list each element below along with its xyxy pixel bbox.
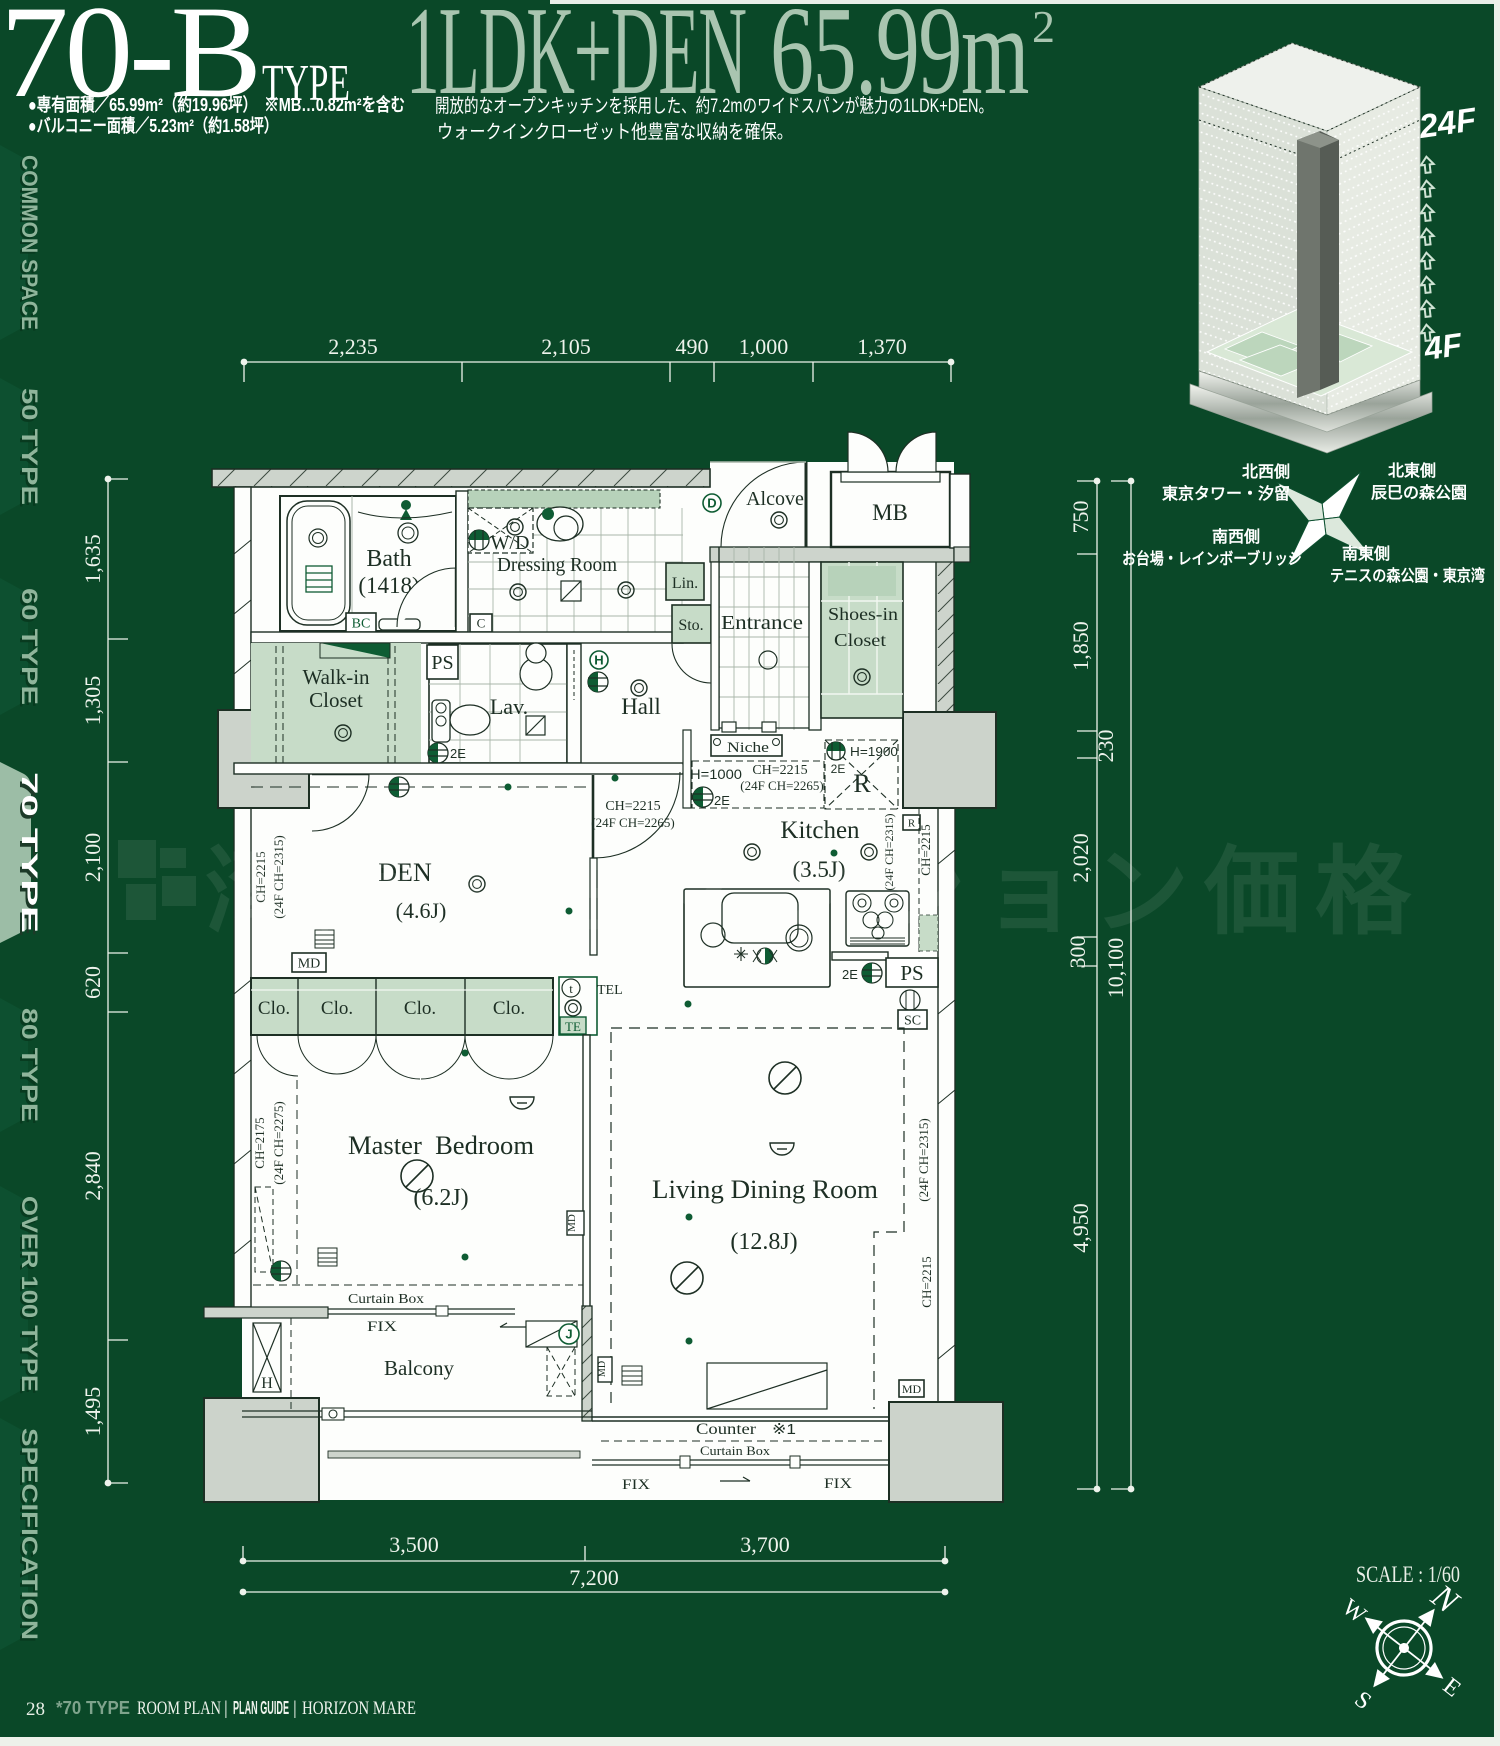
svg-text:1,370: 1,370 (857, 334, 907, 359)
svg-text:D: D (707, 496, 716, 511)
svg-text:Counter: Counter (696, 1421, 757, 1438)
svg-text:70 TYPE: 70 TYPE (17, 772, 42, 933)
svg-text:Closet: Closet (309, 688, 363, 712)
svg-text:7,200: 7,200 (569, 1565, 619, 1590)
svg-text:Clo.: Clo. (321, 998, 353, 1019)
svg-text:R: R (908, 818, 916, 830)
svg-text:(24F CH=2315): (24F CH=2315) (916, 1118, 931, 1202)
svg-text:BC: BC (352, 617, 371, 632)
svg-text:490: 490 (676, 334, 709, 359)
svg-text:MD: MD (298, 957, 321, 972)
svg-text:2,235: 2,235 (328, 334, 378, 359)
svg-text:|: | (224, 1698, 228, 1719)
svg-text:3,500: 3,500 (389, 1532, 439, 1557)
svg-text:SPECIFICATION: SPECIFICATION (17, 1428, 42, 1640)
svg-text:(12.8J): (12.8J) (730, 1229, 797, 1255)
svg-text:C: C (477, 616, 486, 631)
svg-text:●バルコニー面積／5.23m²（約1.58坪）: ●バルコニー面積／5.23m²（約1.58坪） (28, 115, 278, 136)
svg-text:Hall: Hall (621, 694, 661, 719)
svg-text:Clo.: Clo. (404, 998, 436, 1019)
svg-text:TEL: TEL (597, 983, 623, 998)
svg-text:1,495: 1,495 (80, 1387, 105, 1437)
svg-text:FIX: FIX (367, 1319, 397, 1335)
svg-text:4,950: 4,950 (1068, 1203, 1093, 1253)
svg-text:Curtain Box: Curtain Box (700, 1443, 771, 1458)
svg-text:ウォークインクローゼット他豊富な収納を確保。: ウォークインクローゼット他豊富な収納を確保。 (437, 121, 793, 143)
svg-text:東京タワー・汐留: 東京タワー・汐留 (1162, 484, 1290, 503)
svg-text:1,000: 1,000 (739, 334, 789, 359)
svg-text:60 TYPE: 60 TYPE (17, 588, 42, 705)
svg-text:H=1000: H=1000 (690, 766, 742, 782)
svg-text:Living Dining Room: Living Dining Room (652, 1175, 878, 1204)
svg-text:Clo.: Clo. (258, 998, 290, 1019)
svg-text:PS: PS (900, 961, 923, 985)
svg-text:COMMON SPACE: COMMON SPACE (17, 155, 42, 330)
svg-text:2,840: 2,840 (80, 1151, 105, 1201)
svg-text:HORIZON MARE: HORIZON MARE (302, 1698, 416, 1719)
svg-text:テニスの森公園・東京湾: テニスの森公園・東京湾 (1330, 566, 1485, 585)
svg-text:開放的なオープンキッチンを採用した、約7.2mのワイドスパン: 開放的なオープンキッチンを採用した、約7.2mのワイドスパンが魅力の1LDK+D… (435, 95, 993, 117)
svg-text:ROOM PLAN: ROOM PLAN (137, 1698, 221, 1719)
svg-text:t: t (569, 981, 573, 996)
svg-text:Clo.: Clo. (493, 998, 525, 1019)
svg-text:*70 TYPE: *70 TYPE (56, 1698, 130, 1718)
svg-text:湾岸中古マンション価格: 湾岸中古マンション価格 (205, 839, 1426, 946)
svg-text:1,305: 1,305 (80, 676, 105, 726)
svg-text:Alcove: Alcove (746, 488, 804, 510)
svg-text:CH=2175: CH=2175 (252, 1117, 267, 1168)
svg-text:●専有面積／65.99m²（約19.96坪） ※MB…0.8: ●専有面積／65.99m²（約19.96坪） ※MB…0.82m²を含む (28, 94, 405, 115)
svg-text:CH=2215: CH=2215 (752, 763, 807, 778)
svg-text:W/D: W/D (491, 532, 530, 554)
svg-text:3,700: 3,700 (740, 1532, 790, 1557)
svg-text:50 TYPE: 50 TYPE (17, 388, 42, 505)
svg-text:MD: MD (902, 1382, 922, 1396)
svg-text:2,100: 2,100 (80, 833, 105, 883)
svg-text:TE: TE (565, 1019, 581, 1034)
svg-text:CH=2215: CH=2215 (919, 1256, 934, 1307)
svg-text:北西側: 北西側 (1242, 462, 1290, 481)
svg-text:お台場・レインボーブリッジ: お台場・レインボーブリッジ (1122, 549, 1302, 568)
svg-text:MB: MB (872, 500, 908, 525)
svg-text:FIX: FIX (622, 1477, 650, 1493)
svg-text:Bath: Bath (366, 546, 411, 572)
svg-text:PS: PS (431, 652, 453, 674)
svg-text:CH=2215: CH=2215 (605, 799, 660, 814)
svg-text:2: 2 (1032, 1, 1055, 52)
svg-text:Lav.: Lav. (490, 694, 528, 719)
svg-text:※1: ※1 (772, 1421, 796, 1438)
svg-text:230: 230 (1093, 730, 1118, 763)
svg-text:Dressing Room: Dressing Room (497, 554, 617, 576)
svg-text:Closet: Closet (834, 630, 886, 650)
svg-text:MD: MD (597, 1361, 608, 1377)
svg-text:1,635: 1,635 (80, 534, 105, 584)
svg-text:10,100: 10,100 (1103, 938, 1128, 999)
svg-text:28: 28 (26, 1699, 45, 1720)
svg-text:辰巳の森公園: 辰巳の森公園 (1371, 483, 1467, 502)
svg-text:FIX: FIX (824, 1476, 852, 1492)
svg-text:Sto.: Sto. (678, 617, 703, 634)
svg-text:1,850: 1,850 (1068, 621, 1093, 671)
svg-text:4F: 4F (1421, 326, 1465, 367)
svg-text:H=1900: H=1900 (850, 744, 898, 759)
svg-text:J: J (565, 1327, 572, 1342)
svg-text:(6.2J): (6.2J) (413, 1185, 468, 1211)
svg-text:620: 620 (80, 966, 105, 999)
svg-text:2E: 2E (842, 967, 858, 982)
svg-text:2E: 2E (450, 746, 466, 761)
svg-text:Curtain Box: Curtain Box (348, 1292, 424, 1307)
svg-text:H: H (261, 1375, 273, 1392)
svg-text:R: R (853, 769, 871, 798)
svg-text:Shoes-in: Shoes-in (828, 604, 898, 624)
svg-text:SC: SC (904, 1014, 921, 1029)
svg-text:PLAN GUIDE: PLAN GUIDE (233, 1698, 289, 1718)
svg-text:南西側: 南西側 (1212, 527, 1260, 546)
svg-text:|: | (293, 1698, 297, 1719)
svg-text:Lin.: Lin. (672, 575, 698, 592)
svg-text:(24F CH=2275): (24F CH=2275) (271, 1101, 286, 1185)
svg-text:H: H (594, 653, 603, 668)
svg-text:2E: 2E (831, 762, 846, 776)
svg-text:(24F CH=2265): (24F CH=2265) (591, 815, 675, 830)
svg-text:750: 750 (1068, 501, 1093, 534)
svg-text:Balcony: Balcony (384, 1356, 454, 1380)
svg-text:Entrance: Entrance (721, 612, 803, 634)
svg-text:OVER 100 TYPE: OVER 100 TYPE (17, 1196, 42, 1392)
svg-text:(24F CH=2265): (24F CH=2265) (740, 778, 824, 793)
svg-text:南東側: 南東側 (1342, 544, 1390, 563)
svg-text:Master Bedroom: Master Bedroom (348, 1131, 534, 1160)
svg-text:80 TYPE: 80 TYPE (17, 1008, 42, 1122)
svg-text:MD: MD (566, 1214, 578, 1232)
svg-text:2E: 2E (714, 793, 730, 808)
svg-text:2,105: 2,105 (541, 334, 591, 359)
svg-text:Walk-in: Walk-in (302, 665, 370, 689)
svg-text:北東側: 北東側 (1388, 461, 1436, 480)
svg-text:Niche: Niche (727, 740, 769, 756)
